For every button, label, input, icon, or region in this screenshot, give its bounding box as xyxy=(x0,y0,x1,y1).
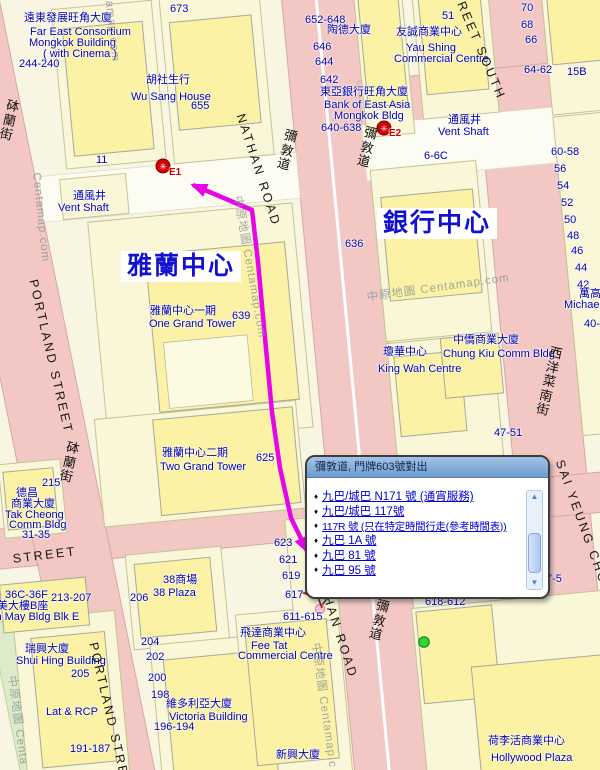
diamond-bullet-icon: ♦ xyxy=(314,492,318,501)
map-label: 644 xyxy=(315,56,333,69)
map-label: 64-62 xyxy=(524,64,552,77)
map-label: 友誠商業中心 xyxy=(396,26,462,39)
map-label: ET xyxy=(0,55,1,78)
map-label: 204 xyxy=(141,636,159,649)
scroll-down-icon[interactable]: ▼ xyxy=(527,578,542,588)
map-label: 50 xyxy=(564,214,576,227)
map-label: 通風井 xyxy=(448,114,481,127)
map-label: 46 xyxy=(571,245,583,258)
map-label: Michaels xyxy=(564,299,600,312)
scroll-up-icon[interactable]: ▲ xyxy=(527,492,542,502)
street-label-cross-street: STREET xyxy=(12,544,78,566)
map-label: 瑞興大廈 xyxy=(25,643,69,656)
map-label: 70 xyxy=(521,2,533,15)
map-label: King Wah Centre xyxy=(378,363,461,376)
map-label: 54 xyxy=(557,180,569,193)
map-label: 銀行中心 xyxy=(377,208,497,239)
map-label: Centamap.com xyxy=(29,172,52,263)
map-label: 48 xyxy=(567,230,579,243)
map-label: 244-240 xyxy=(19,58,59,71)
map-label: 215 xyxy=(42,477,60,490)
map-label: Two Grand Tower xyxy=(160,461,246,474)
map-label: 617 xyxy=(285,589,303,602)
map-label: Chung Kiu Comm Bldg xyxy=(443,348,555,361)
map-label: 642 xyxy=(320,74,338,87)
mtr-exit-e1-label: E1 xyxy=(169,167,181,179)
map-label: 中僑商業大廈 xyxy=(453,334,519,347)
map-label: Hollywood Plaza xyxy=(491,752,572,765)
map-label: 彌 敦 道 xyxy=(275,128,298,173)
map-label: 60-58 xyxy=(551,146,579,159)
map-label: 52 xyxy=(561,197,573,210)
diamond-bullet-icon: ♦ xyxy=(314,521,318,530)
map-label: 646 xyxy=(313,41,331,54)
map-label: 56 xyxy=(554,163,566,176)
bus-route-item[interactable]: ♦ 117R 號 (只在特定時間行走(參考時間表)) xyxy=(314,518,522,533)
map-label: Mongkok Bldg xyxy=(334,110,404,123)
map-label: 雅蘭中心一期 xyxy=(150,305,216,318)
street-label-portland-street: PORTLAND STREET xyxy=(26,278,76,435)
map-label: 673 xyxy=(170,3,188,16)
map-label: 雅蘭中心 xyxy=(121,251,241,282)
map-label: 中原地圖 Centamap.com xyxy=(366,272,511,305)
map-label: 191-187 xyxy=(70,743,110,756)
bus-route-item[interactable]: ♦ 九巴 1A 號 xyxy=(314,533,522,548)
map-label: 639 xyxy=(232,310,250,323)
map-label: 東亞銀行旺角大廈 xyxy=(320,86,408,99)
map-label: 彌 敦 道 xyxy=(367,598,390,643)
map-label: 維多利亞大廈 xyxy=(166,698,232,711)
bus-route-link[interactable]: 九巴 1A 號 xyxy=(322,532,376,548)
popup-scrollbar[interactable]: ▲ ▼ xyxy=(526,490,543,590)
map-label: 68 xyxy=(521,19,533,32)
map-label: 44 xyxy=(575,262,587,275)
bus-route-link[interactable]: 117R 號 (只在特定時間行走(參考時間表)) xyxy=(322,518,506,533)
map-label: 中原地圖 Centa xyxy=(4,675,30,766)
map-label: 655 xyxy=(191,100,209,113)
map-label: 砵 蘭 街 xyxy=(58,440,80,485)
map-label: 40-3 xyxy=(584,318,600,331)
map-label: 飛達商業中心 xyxy=(240,627,306,640)
map-label: 11 xyxy=(96,154,107,167)
map-label: 202 xyxy=(146,651,164,664)
map-label: 640-638 xyxy=(321,122,361,135)
diamond-bullet-icon: ♦ xyxy=(314,565,318,574)
map-label: 213-207 xyxy=(51,592,91,605)
bus-route-link[interactable]: 九巴/城巴 N171 號 (通宵服務) xyxy=(322,488,473,504)
bus-route-link[interactable]: 九巴/城巴 117號 xyxy=(322,503,404,519)
map-label: 砵 蘭 街 xyxy=(0,98,21,143)
bus-routes-popup: 彌敦道, 門牌603號對出 ♦ 九巴/城巴 N171 號 (通宵服務) ♦ 九巴… xyxy=(305,455,550,599)
map-label: 200 xyxy=(148,672,166,685)
bus-route-item[interactable]: ♦ 九巴 81 號 xyxy=(314,548,522,563)
map-label: 623 xyxy=(274,537,292,550)
map-label: 619 xyxy=(282,570,300,583)
bus-route-item[interactable]: ♦ 九巴/城巴 N171 號 (通宵服務) xyxy=(314,489,522,504)
map-label: Kah May Bldg Blk E xyxy=(0,611,79,624)
map-label: 通風井 xyxy=(73,190,106,203)
bus-route-list: ♦ 九巴/城巴 N171 號 (通宵服務) ♦ 九巴/城巴 117號 ♦ 117… xyxy=(314,489,522,577)
map-label: 196-194 xyxy=(154,721,194,734)
map-label: Lat & RCP xyxy=(46,706,98,719)
map-label: 611-615 xyxy=(283,611,323,624)
map-label: 636 xyxy=(345,238,363,251)
bus-route-link[interactable]: 九巴 95 號 xyxy=(322,562,376,578)
diamond-bullet-icon: ♦ xyxy=(314,507,318,516)
map-label: Vent Shaft xyxy=(58,202,109,215)
map-label: 新興大廈 xyxy=(276,749,320,762)
map-label: 瓊華中心 xyxy=(383,346,427,359)
map-label: 66 xyxy=(525,34,537,47)
map-label: 625 xyxy=(256,452,274,465)
popup-title: 彌敦道, 門牌603號對出 xyxy=(307,457,548,478)
diamond-bullet-icon: ♦ xyxy=(314,536,318,545)
bus-route-item[interactable]: ♦ 九巴/城巴 117號 xyxy=(314,504,522,519)
map-label: 6-6C xyxy=(424,150,448,163)
map-label: 38 Plaza xyxy=(153,587,196,600)
map-label: 31-35 xyxy=(22,529,50,542)
map-canvas[interactable]: ✳ ✳ 遠東發展旺角大廈Far East ConsortiumMongkok B… xyxy=(0,0,600,770)
map-label: Vent Shaft xyxy=(438,126,489,139)
map-label: 51 xyxy=(442,10,454,23)
bus-route-item[interactable]: ♦ 九巴 95 號 xyxy=(314,562,522,577)
map-label: 15B xyxy=(567,66,587,79)
map-label: 陶德大廈 xyxy=(327,24,371,37)
diamond-bullet-icon: ♦ xyxy=(314,551,318,560)
map-label: 遠東發展旺角大廈 xyxy=(24,12,112,25)
mtr-exit-e2-label: E2 xyxy=(389,128,401,140)
map-label: One Grand Tower xyxy=(149,318,236,331)
scroll-thumb[interactable] xyxy=(528,533,541,573)
map-labels-layer: 遠東發展旺角大廈Far East ConsortiumMongkok Build… xyxy=(0,0,600,770)
map-label: 雅蘭中心二期 xyxy=(162,447,228,460)
map-label: 荷李活商業中心 xyxy=(488,735,565,748)
map-label: 621 xyxy=(279,554,297,567)
map-label: 胡社生行 xyxy=(146,74,190,87)
map-label: 206 xyxy=(130,592,148,605)
map-label: 47-51 xyxy=(494,427,522,440)
map-label: 205 xyxy=(71,668,89,681)
map-label: 38商場 xyxy=(163,574,197,587)
bus-route-link[interactable]: 九巴 81 號 xyxy=(322,547,376,563)
